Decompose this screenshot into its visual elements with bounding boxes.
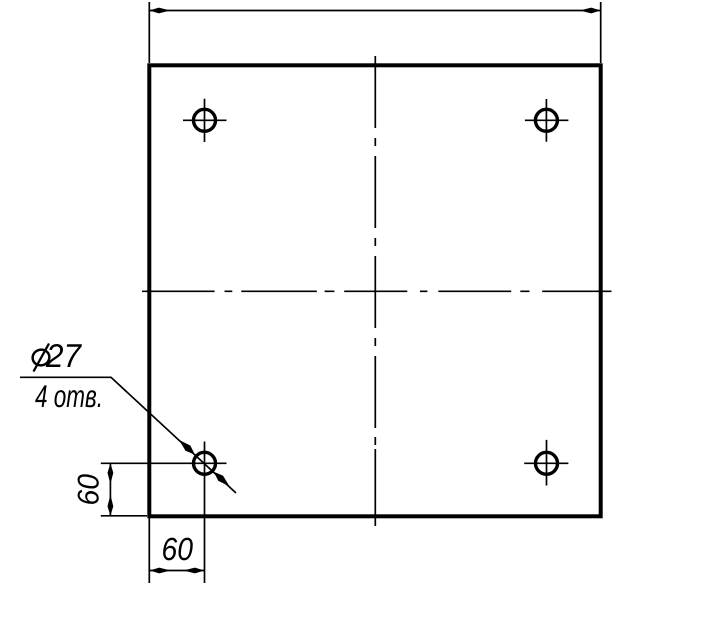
svg-text:4 отв.: 4 отв. [35,378,103,414]
svg-text:27: 27 [45,337,83,374]
svg-text:60: 60 [73,474,106,506]
svg-text:60: 60 [162,531,194,567]
